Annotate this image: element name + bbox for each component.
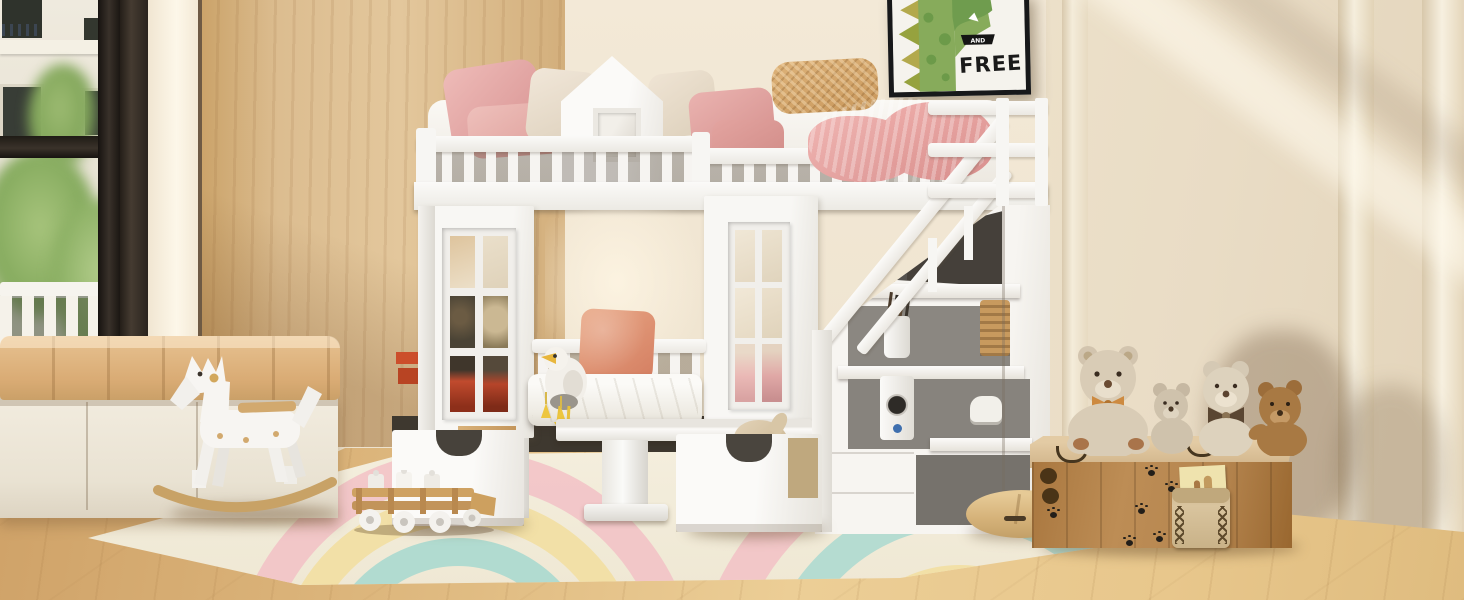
window-pane — [762, 288, 782, 338]
wicker-basket — [980, 300, 1010, 356]
balcony-railing — [2, 24, 42, 36]
window — [0, 0, 148, 394]
window-frame-right — [120, 0, 148, 394]
window-pane-pink — [735, 344, 755, 402]
light-streak — [1044, 0, 1464, 300]
pocket-flap — [1172, 488, 1230, 503]
window-pane-plants — [483, 296, 508, 348]
cushion-highlight — [0, 336, 340, 348]
stair-baluster — [964, 206, 973, 260]
tassel-string — [545, 392, 547, 404]
stair-end-panel-edge — [1002, 200, 1005, 534]
paw-print — [1050, 512, 1057, 518]
paw-print — [1148, 470, 1155, 476]
window-pane — [735, 288, 755, 338]
red-toy — [398, 368, 420, 384]
tassel-string — [560, 396, 562, 408]
toy-chest-body — [1032, 462, 1292, 548]
poster: AND FREE — [887, 0, 1031, 97]
window-pane — [762, 230, 782, 282]
paw-print — [1126, 540, 1133, 546]
window-pane-red — [483, 356, 508, 412]
panel-window-frame — [442, 228, 516, 420]
guardrail-top-bar — [416, 136, 702, 152]
window-pane-plants — [450, 296, 475, 348]
dino-illustration: AND FREE — [892, 0, 1026, 92]
chest-pocket — [1172, 488, 1230, 548]
pocket-stitching — [1175, 506, 1184, 544]
red-toy — [396, 352, 420, 364]
panel-window-frame — [728, 222, 790, 410]
window-pane — [450, 236, 475, 288]
top-railing-bar — [928, 184, 1048, 198]
stair-shelf-board — [930, 438, 1032, 451]
railing-post — [1035, 98, 1048, 206]
lower-panel-right — [704, 196, 818, 438]
teddy-bears — [1036, 336, 1312, 456]
washer-dial — [893, 424, 902, 433]
drawer-notch-handle — [726, 434, 772, 462]
drawer-notch-handle — [436, 430, 482, 456]
stair-shelf-board — [838, 366, 1024, 379]
stair-drawer-seam — [820, 492, 914, 494]
top-railing-bar — [928, 101, 1048, 115]
top-railing-bar — [928, 143, 1048, 157]
poster-badge-label: AND — [971, 37, 986, 44]
desk-pedestal — [602, 440, 648, 508]
basket-weave — [980, 300, 1010, 356]
pouf-handle — [1004, 516, 1026, 521]
lower-panel-left — [420, 206, 534, 438]
chest-side-hole — [1040, 468, 1057, 484]
drawer-interior-shade — [788, 438, 818, 498]
washer-door — [886, 394, 908, 416]
window-pane — [735, 230, 755, 282]
window-pane-red — [450, 356, 475, 412]
poster-title: FREE — [959, 50, 1023, 77]
kids-room-scene: AND FREE — [0, 0, 1464, 600]
paw-print — [1156, 536, 1163, 542]
window-pane — [483, 236, 508, 288]
storage-drawer-right — [676, 434, 822, 532]
drawer-edge — [676, 524, 822, 532]
desk-foot — [584, 504, 668, 521]
toy-washer — [880, 376, 914, 440]
seat-door-seam — [86, 402, 88, 510]
stair-baluster — [928, 238, 937, 292]
toy-wagon — [344, 470, 502, 536]
rocking-horse — [148, 350, 340, 530]
paw-print — [1138, 508, 1145, 514]
guardrail-spindles — [420, 150, 698, 184]
stair-drawer-seam — [820, 452, 914, 454]
pocket-stitching — [1218, 506, 1227, 544]
chest-side-hole — [1042, 488, 1059, 504]
window-stile-vertical — [98, 0, 120, 394]
sneaker — [970, 396, 1002, 422]
window-pane-pink — [762, 344, 782, 402]
railing-post — [996, 98, 1009, 206]
chest-plank-lines — [1032, 462, 1292, 548]
